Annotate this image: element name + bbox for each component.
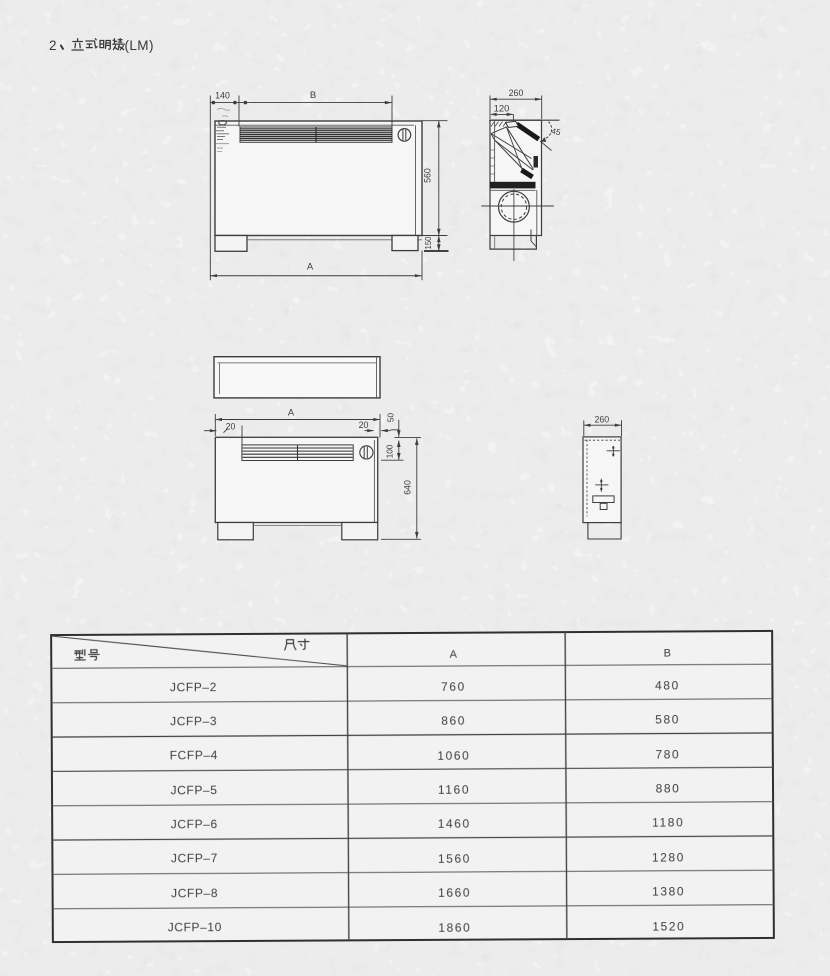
svg-text:(LM): (LM) [125, 38, 154, 53]
svg-text:20: 20 [359, 420, 369, 430]
svg-text:260: 260 [509, 88, 524, 98]
svg-text:B: B [310, 90, 316, 101]
svg-text:560: 560 [423, 168, 433, 183]
svg-text:20: 20 [226, 421, 236, 431]
svg-text:260: 260 [594, 414, 609, 424]
svg-text:150: 150 [424, 236, 433, 250]
svg-text:2: 2 [49, 38, 57, 53]
svg-text:50: 50 [386, 413, 396, 423]
svg-text:45: 45 [550, 126, 561, 138]
svg-text:A: A [307, 262, 314, 273]
svg-text:640: 640 [402, 480, 412, 495]
svg-text:A: A [288, 407, 295, 417]
svg-text:120: 120 [494, 104, 510, 115]
svg-text:100: 100 [384, 444, 394, 458]
svg-text:140: 140 [215, 91, 230, 101]
